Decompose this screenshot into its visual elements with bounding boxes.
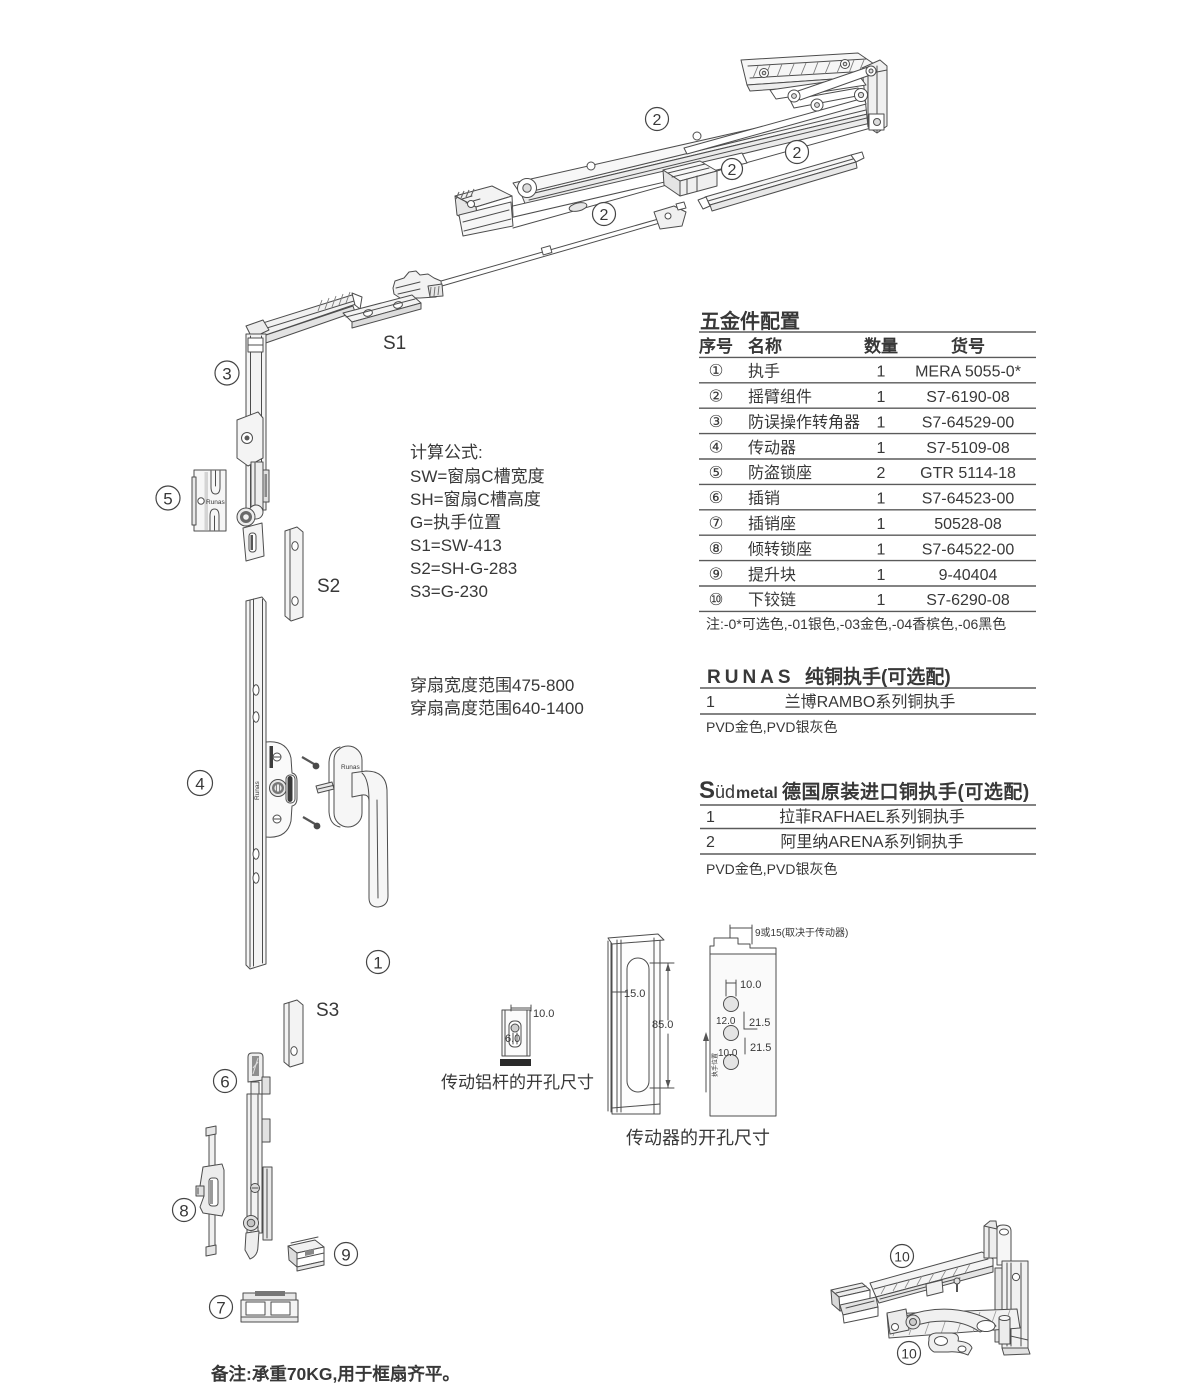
svg-text:21.5: 21.5 [749, 1017, 770, 1029]
svg-text:50528-08: 50528-08 [934, 516, 1002, 533]
svg-text:85.0: 85.0 [652, 1019, 673, 1031]
svg-text:阿里纳ARENA系列铜执手: 阿里纳ARENA系列铜执手 [780, 833, 963, 851]
svg-text:15.0: 15.0 [624, 988, 645, 1000]
svg-text:PVD金色,PVD银灰色: PVD金色,PVD银灰色 [706, 861, 837, 877]
svg-text:9: 9 [341, 1246, 350, 1265]
svg-text:插销座: 插销座 [748, 515, 796, 533]
svg-text:注:-0*可选色,-01银色,-03金色,-04香槟色,-0: 注:-0*可选色,-01银色,-03金色,-04香槟色,-06黑色 [706, 616, 1006, 632]
svg-text:1: 1 [877, 592, 886, 609]
svg-text:2: 2 [653, 112, 662, 129]
svg-text:2: 2 [793, 145, 802, 162]
svg-text:货号: 货号 [951, 336, 985, 356]
svg-text:S1=SW-413: S1=SW-413 [410, 536, 502, 555]
svg-text:穿扇高度范围640-1400: 穿扇高度范围640-1400 [410, 699, 584, 718]
svg-text:4: 4 [195, 775, 204, 794]
svg-text:S7-64523-00: S7-64523-00 [922, 491, 1015, 508]
svg-text:执手: 执手 [748, 363, 780, 381]
svg-text:⑨: ⑨ [709, 565, 724, 583]
svg-text:②: ② [709, 388, 724, 406]
svg-text:⑥: ⑥ [709, 489, 724, 507]
svg-text:1: 1 [877, 516, 886, 533]
svg-text:S2: S2 [317, 576, 340, 597]
svg-text:1: 1 [877, 414, 886, 431]
svg-text:德国原装进口铜执手(可选配): 德国原装进口铜执手(可选配) [782, 780, 1030, 803]
svg-text:⑤: ⑤ [709, 464, 724, 482]
svg-text:传动铝杆的开孔尺寸: 传动铝杆的开孔尺寸 [441, 1073, 594, 1092]
svg-text:①: ① [709, 362, 724, 380]
svg-text:MERA 5055-0*: MERA 5055-0* [915, 364, 1021, 381]
svg-text:五金件配置: 五金件配置 [700, 309, 800, 333]
svg-text:9-40404: 9-40404 [939, 567, 998, 584]
svg-text:S7-6190-08: S7-6190-08 [926, 389, 1010, 406]
svg-text:⑩: ⑩ [709, 591, 724, 609]
svg-text:RUNAS: RUNAS [707, 667, 795, 688]
svg-text:序号: 序号 [699, 336, 733, 356]
svg-text:1: 1 [877, 389, 886, 406]
svg-text:S7-5109-08: S7-5109-08 [926, 440, 1010, 457]
svg-text:传动器的开孔尺寸: 传动器的开孔尺寸 [626, 1128, 770, 1148]
svg-text:③: ③ [709, 413, 724, 431]
svg-text:传动器: 传动器 [748, 439, 796, 457]
svg-text:5: 5 [163, 490, 172, 509]
svg-text:防误操作转角器: 防误操作转角器 [748, 413, 860, 431]
svg-text:6: 6 [220, 1073, 229, 1092]
svg-text:1: 1 [706, 694, 715, 711]
svg-text:名称: 名称 [748, 336, 782, 356]
svg-text:S2=SH-G-283: S2=SH-G-283 [410, 559, 517, 578]
svg-text:提升块: 提升块 [748, 566, 796, 584]
svg-text:Runas: Runas [341, 764, 361, 771]
svg-text:S7-64522-00: S7-64522-00 [922, 541, 1015, 558]
svg-text:S1: S1 [383, 333, 406, 354]
svg-text:SW=窗扇C槽宽度: SW=窗扇C槽宽度 [410, 467, 545, 486]
svg-text:7: 7 [216, 1299, 225, 1318]
svg-text:数量: 数量 [864, 336, 898, 356]
svg-text:2: 2 [877, 465, 886, 482]
svg-text:1: 1 [877, 567, 886, 584]
svg-text:1: 1 [877, 491, 886, 508]
svg-text:10.0: 10.0 [533, 1008, 554, 1020]
svg-text:üd: üd [715, 782, 735, 802]
svg-text:GTR 5114-18: GTR 5114-18 [920, 465, 1016, 482]
svg-text:metal: metal [736, 785, 778, 802]
svg-text:12.0: 12.0 [716, 1016, 736, 1027]
svg-text:Runas: Runas [206, 499, 226, 506]
svg-text:6.0: 6.0 [505, 1033, 520, 1045]
svg-text:10: 10 [894, 1249, 910, 1265]
svg-text:防盗锁座: 防盗锁座 [748, 464, 812, 482]
svg-text:S7-6290-08: S7-6290-08 [926, 592, 1010, 609]
svg-text:⑦: ⑦ [709, 515, 724, 533]
svg-text:插销: 插销 [748, 490, 780, 508]
svg-text:10.0: 10.0 [718, 1048, 738, 1059]
svg-text:1: 1 [877, 440, 886, 457]
svg-text:21.5: 21.5 [750, 1042, 771, 1054]
svg-text:Runas: Runas [254, 780, 261, 800]
svg-text:穿扇宽度范围475-800: 穿扇宽度范围475-800 [410, 676, 574, 695]
svg-text:S: S [699, 777, 715, 804]
svg-text:⑧: ⑧ [709, 540, 724, 558]
svg-text:10.0: 10.0 [740, 979, 761, 991]
svg-text:执手位置: 执手位置 [711, 1053, 719, 1077]
svg-text:摇臂组件: 摇臂组件 [748, 388, 812, 406]
svg-text:④: ④ [709, 438, 724, 456]
svg-text:3: 3 [222, 365, 231, 384]
svg-text:倾转锁座: 倾转锁座 [748, 540, 812, 558]
svg-text:10: 10 [901, 1346, 917, 1362]
svg-text:2: 2 [600, 207, 609, 224]
svg-text:1: 1 [877, 364, 886, 381]
svg-text:2: 2 [706, 834, 715, 851]
svg-text:下铰链: 下铰链 [748, 591, 796, 609]
svg-text:纯铜执手(可选配): 纯铜执手(可选配) [805, 665, 951, 688]
svg-text:PVD金色,PVD银灰色: PVD金色,PVD银灰色 [706, 719, 837, 735]
svg-text:1: 1 [877, 541, 886, 558]
svg-text:9或15(取决于传动器): 9或15(取决于传动器) [755, 927, 848, 939]
svg-text:1: 1 [373, 954, 382, 973]
svg-text:1: 1 [706, 809, 715, 826]
svg-text:备注:承重70KG,用于框扇齐平。: 备注:承重70KG,用于框扇齐平。 [210, 1364, 460, 1384]
svg-text:8: 8 [179, 1202, 188, 1221]
svg-text:拉菲RAFHAEL系列铜执手: 拉菲RAFHAEL系列铜执手 [779, 808, 965, 826]
svg-text:2: 2 [728, 162, 737, 179]
svg-text:兰博RAMBO系列铜执手: 兰博RAMBO系列铜执手 [785, 693, 956, 711]
svg-text:计算公式:: 计算公式: [410, 443, 483, 462]
svg-text:S3: S3 [316, 1000, 339, 1021]
svg-text:S7-64529-00: S7-64529-00 [922, 414, 1015, 431]
svg-text:SH=窗扇C槽高度: SH=窗扇C槽高度 [410, 490, 541, 509]
svg-text:G=执手位置: G=执手位置 [410, 513, 501, 532]
svg-text:S3=G-230: S3=G-230 [410, 582, 488, 601]
